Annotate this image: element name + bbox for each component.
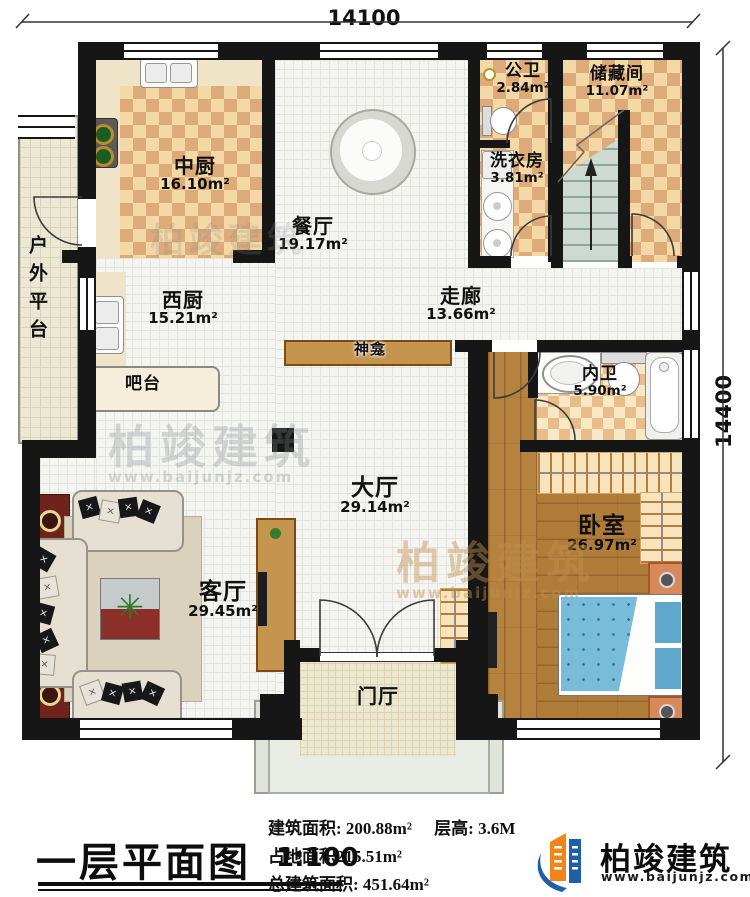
- bed-pillow: [653, 600, 683, 645]
- window: [124, 42, 218, 60]
- wall-segment: [468, 256, 511, 268]
- public-toilet-bowl: [490, 107, 517, 135]
- wall-segment: [480, 140, 510, 148]
- wall-segment: [300, 648, 320, 662]
- window: [80, 718, 232, 740]
- washer-drum-center: [493, 239, 501, 247]
- dimension-top: 14100: [322, 6, 406, 30]
- wall-segment: [537, 340, 700, 352]
- wall-segment: [677, 256, 688, 268]
- room-label-dining: 餐厅 19.17m²: [258, 216, 368, 253]
- room-label-corridor: 走廊 13.66m²: [406, 286, 516, 323]
- wall-segment: [22, 458, 40, 740]
- wall-segment: [520, 440, 685, 452]
- wall-segment: [456, 640, 472, 726]
- platform-railing: [18, 115, 75, 139]
- door-opening: [78, 199, 96, 247]
- bed: [558, 594, 684, 696]
- wall-segment: [260, 694, 286, 726]
- nightstand: [648, 562, 686, 598]
- window: [78, 278, 96, 330]
- room-label-public-bath: 公卫 2.84m²: [478, 63, 568, 95]
- stat-line: 占地面积215.51m²: [268, 842, 402, 867]
- wall-segment: [455, 340, 492, 352]
- room-label-hall: 大厅 29.14m²: [320, 476, 430, 516]
- room-label-laundry: 洗衣房 3.81m²: [482, 153, 552, 185]
- washer-drum-center: [493, 202, 501, 210]
- room-label-kitchen: 中厨 16.10m²: [140, 156, 250, 193]
- wall-segment: [618, 256, 632, 268]
- wall-segment: [62, 250, 96, 263]
- wall-segment: [551, 256, 563, 268]
- company-website: www.baijunjz.com: [601, 869, 750, 884]
- mat-medallion: [39, 510, 61, 532]
- window: [517, 718, 660, 740]
- room-label-westkitchen: 西厨 15.21m²: [128, 290, 238, 327]
- floorplan-canvas: ✳: [0, 0, 750, 897]
- window: [587, 42, 663, 60]
- room-label-master-bath: 内卫 5.90m²: [552, 366, 648, 398]
- wardrobe-top: [537, 452, 684, 494]
- wall-segment: [22, 440, 96, 458]
- label-foyer: 门厅: [326, 686, 430, 707]
- window: [320, 42, 438, 60]
- company-logo-icon: [532, 826, 596, 894]
- bathtub-drain: [659, 362, 669, 372]
- wall-segment: [284, 640, 300, 726]
- window: [682, 350, 700, 438]
- dining-table-center: [362, 141, 382, 161]
- room-label-bedroom: 卧室 26.97m²: [552, 514, 652, 554]
- window: [487, 42, 542, 60]
- cabinet-plant: [270, 528, 281, 539]
- dimension-right: 14400: [712, 376, 736, 448]
- stat-line: 建筑面积: 200.88m² 层高: 3.6M: [268, 814, 515, 839]
- label-shrine: 神龛: [336, 342, 404, 358]
- label-bar: 吧台: [108, 376, 178, 394]
- wall-segment: [472, 694, 498, 726]
- window: [682, 272, 700, 330]
- wall-segment: [618, 110, 630, 262]
- wall-segment: [528, 352, 538, 398]
- tv-bedroom: [488, 612, 497, 668]
- room-label-living: 客厅 29.45m²: [168, 580, 278, 620]
- column: [272, 428, 294, 452]
- bed-pillow: [653, 646, 683, 691]
- entrance-sill: [320, 652, 434, 662]
- sofa-pillow: [121, 680, 143, 702]
- stat-line: 总建筑面积: 451.64m²: [268, 870, 429, 895]
- coffee-table-plant: ✳: [112, 590, 148, 626]
- room-label-storage: 储藏间 11.07m²: [572, 66, 662, 98]
- page-title: 一层平面图: [36, 830, 251, 888]
- label-outdoor-platform: 户外平台: [26, 206, 46, 376]
- wall-segment: [22, 718, 80, 740]
- kitchen-double-sink: [140, 58, 198, 88]
- wall-segment: [434, 648, 456, 662]
